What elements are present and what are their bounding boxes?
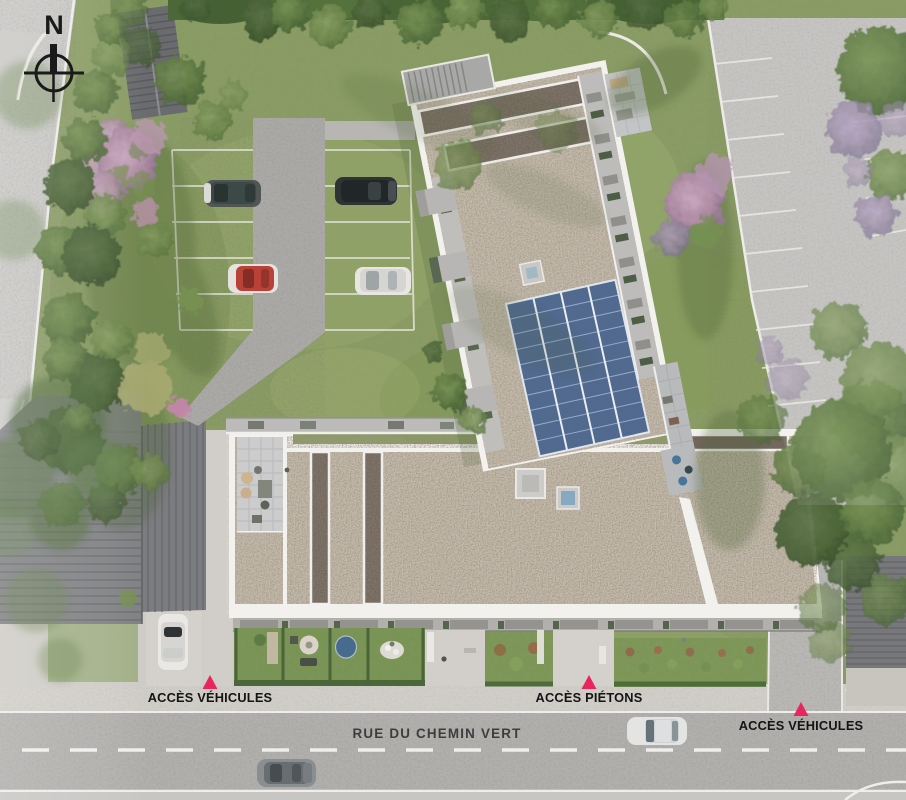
svg-text:ACCÈS VÉHICULES: ACCÈS VÉHICULES (148, 690, 273, 705)
svg-text:ACCÈS VÉHICULES: ACCÈS VÉHICULES (739, 718, 864, 733)
svg-text:ACCÈS PIÉTONS: ACCÈS PIÉTONS (536, 690, 643, 705)
svg-text:N: N (44, 10, 64, 40)
svg-text:RUE DU CHEMIN VERT: RUE DU CHEMIN VERT (353, 726, 522, 741)
